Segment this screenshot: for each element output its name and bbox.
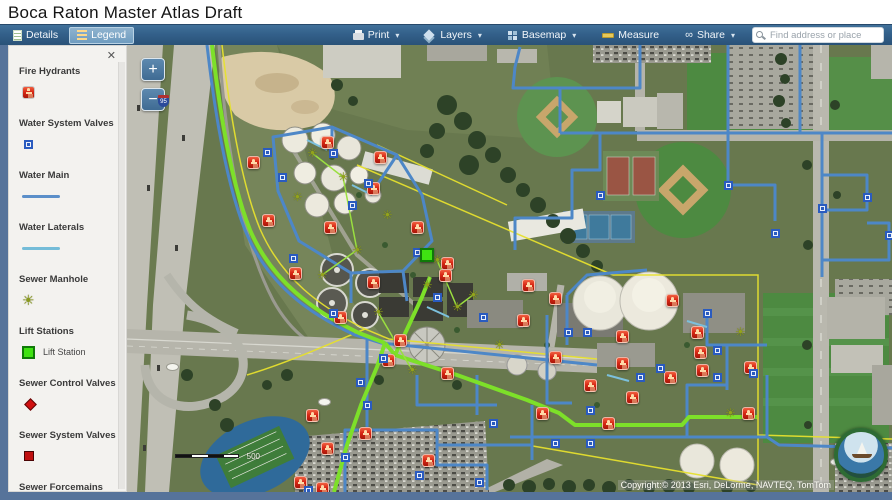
water-valve-marker[interactable] bbox=[749, 369, 758, 378]
legend-item-label: Sewer Control Valves bbox=[19, 378, 119, 389]
measure-icon bbox=[602, 33, 614, 38]
legend-panel: ✕ Fire HydrantsWater System ValvesWater … bbox=[8, 45, 127, 492]
print-button-label: Print bbox=[368, 29, 390, 41]
sewer-manhole-marker[interactable]: ☀ bbox=[307, 148, 318, 158]
sewer-manhole-marker[interactable]: ☀ bbox=[373, 307, 384, 317]
water-valve-marker[interactable] bbox=[551, 439, 560, 448]
fire-hydrant-marker[interactable] bbox=[626, 391, 639, 404]
lift-station-marker[interactable] bbox=[420, 248, 434, 262]
sewer-manhole-marker[interactable]: ☀ bbox=[735, 327, 746, 337]
route-shield bbox=[318, 398, 331, 406]
legend-swatch-row bbox=[22, 397, 119, 411]
legend-item-sublabel: Lift Station bbox=[43, 347, 86, 357]
legend-swatch-row bbox=[22, 449, 119, 463]
legend-item-label: Water Laterals bbox=[19, 222, 119, 233]
system-valve-icon bbox=[24, 451, 34, 461]
fire-hydrant-marker[interactable] bbox=[666, 294, 679, 307]
water-valve-marker[interactable] bbox=[479, 313, 488, 322]
water-valve-marker[interactable] bbox=[564, 328, 573, 337]
water-valve-marker[interactable] bbox=[348, 201, 357, 210]
details-button-label: Details bbox=[26, 29, 58, 41]
water-valve-marker[interactable] bbox=[724, 181, 733, 190]
legend-items: Fire HydrantsWater System ValvesWater Ma… bbox=[9, 66, 119, 492]
legend-item-label: Sewer Manhole bbox=[19, 274, 119, 285]
legend-item: Sewer Manhole☀ bbox=[19, 274, 119, 307]
legend-swatch-row bbox=[22, 189, 119, 203]
water-valve-marker[interactable] bbox=[713, 346, 722, 355]
grid-icon bbox=[508, 31, 512, 35]
water-valve-marker[interactable] bbox=[433, 293, 442, 302]
water-valve-marker[interactable] bbox=[583, 328, 592, 337]
layers-icon bbox=[424, 29, 435, 40]
chevron-down-icon: ▾ bbox=[478, 31, 482, 40]
water-lateral-line-icon bbox=[22, 247, 60, 250]
interstate-95-shield: 95 bbox=[158, 95, 169, 107]
share-button[interactable]: ∞Share▾ bbox=[678, 27, 742, 44]
toolbar-right-group: Print▾Layers▾Basemap▾Measure∞Share▾ bbox=[346, 27, 884, 44]
sewer-manhole-marker[interactable]: ☀ bbox=[468, 290, 479, 300]
fire-hydrant-marker[interactable] bbox=[367, 276, 380, 289]
city-seal-logo bbox=[834, 428, 888, 482]
sewer-manhole-marker[interactable]: ☀ bbox=[292, 192, 303, 202]
fire-hydrant-marker[interactable] bbox=[324, 221, 337, 234]
legend-item-label: Water Main bbox=[19, 170, 119, 181]
legend-scrollbar[interactable] bbox=[118, 62, 125, 489]
fire-hydrant-marker[interactable] bbox=[411, 221, 424, 234]
fire-hydrant-marker[interactable] bbox=[289, 267, 302, 280]
water-valve-marker[interactable] bbox=[329, 149, 338, 158]
chevron-down-icon: ▾ bbox=[731, 31, 735, 40]
layers-button[interactable]: Layers▾ bbox=[418, 27, 489, 44]
fire-hydrant-marker[interactable] bbox=[691, 326, 704, 339]
fire-hydrant-marker[interactable] bbox=[374, 151, 387, 164]
water-valve-marker[interactable] bbox=[703, 309, 712, 318]
sewer-manhole-marker[interactable]: ☀ bbox=[422, 280, 433, 290]
chevron-down-icon: ▾ bbox=[395, 31, 399, 40]
water-valve-marker[interactable] bbox=[304, 486, 313, 492]
legend-item-label: Lift Stations bbox=[19, 326, 119, 337]
legend-item: Sewer System Valves bbox=[19, 430, 119, 463]
fire-hydrant-marker[interactable] bbox=[359, 427, 372, 440]
legend-button-label: Legend bbox=[91, 29, 126, 41]
fire-hydrant-marker[interactable] bbox=[316, 482, 329, 492]
legend-item: Sewer Control Valves bbox=[19, 378, 119, 411]
inf-icon: ∞ bbox=[685, 30, 693, 40]
water-valve-marker[interactable] bbox=[415, 471, 424, 480]
water-valve-marker[interactable] bbox=[356, 378, 365, 387]
fire-hydrant-marker[interactable] bbox=[321, 442, 334, 455]
fire-hydrant-marker[interactable] bbox=[262, 214, 275, 227]
fire-hydrant-marker[interactable] bbox=[517, 314, 530, 327]
water-valve-marker[interactable] bbox=[885, 231, 892, 240]
water-valve-marker[interactable] bbox=[586, 406, 595, 415]
legend-swatch-row bbox=[22, 85, 119, 99]
list-icon bbox=[77, 30, 87, 40]
water-valve-marker[interactable] bbox=[636, 373, 645, 382]
print-button[interactable]: Print▾ bbox=[346, 27, 407, 44]
measure-button[interactable]: Measure bbox=[595, 27, 666, 44]
lift-station-icon bbox=[22, 346, 35, 359]
legend-swatch-row: Lift Station bbox=[22, 345, 119, 359]
sewer-manhole-marker[interactable]: ☀ bbox=[338, 172, 349, 182]
sewer-manhole-marker[interactable]: ☀ bbox=[725, 408, 736, 418]
hydrant-icon bbox=[22, 86, 35, 99]
water-valve-icon bbox=[24, 140, 33, 149]
page-title: Boca Raton Master Atlas Draft bbox=[8, 3, 242, 23]
water-valve-marker[interactable] bbox=[596, 191, 605, 200]
print-icon bbox=[353, 33, 364, 40]
fire-hydrant-marker[interactable] bbox=[422, 454, 435, 467]
measure-button-label: Measure bbox=[618, 29, 659, 41]
fire-hydrant-marker[interactable] bbox=[247, 156, 260, 169]
fire-hydrant-marker[interactable] bbox=[584, 379, 597, 392]
sewer-manhole-marker[interactable]: ☀ bbox=[352, 245, 363, 255]
layers-button-label: Layers bbox=[440, 29, 472, 41]
water-valve-marker[interactable] bbox=[329, 309, 338, 318]
water-valve-marker[interactable] bbox=[289, 254, 298, 263]
control-valve-icon bbox=[24, 398, 37, 411]
water-valve-marker[interactable] bbox=[586, 439, 595, 448]
fire-hydrant-marker[interactable] bbox=[602, 417, 615, 430]
water-main-line-icon bbox=[22, 195, 60, 198]
map-canvas[interactable]: ☀☀☀☀☀☀☀☀☀☀☀☀☀☀☀ + − 95 500 Copyright:© 2… bbox=[127, 45, 892, 492]
toolbar-left-group: DetailsLegend bbox=[6, 27, 134, 44]
water-valve-marker[interactable] bbox=[364, 179, 373, 188]
fire-hydrant-marker[interactable] bbox=[536, 407, 549, 420]
water-valve-marker[interactable] bbox=[263, 148, 272, 157]
chevron-down-icon: ▾ bbox=[572, 31, 576, 40]
water-valve-marker[interactable] bbox=[656, 364, 665, 373]
toolbar: DetailsLegend Print▾Layers▾Basemap▾Measu… bbox=[0, 24, 892, 45]
fire-hydrant-marker[interactable] bbox=[696, 364, 709, 377]
fire-hydrant-marker[interactable] bbox=[616, 330, 629, 343]
water-valve-marker[interactable] bbox=[863, 193, 872, 202]
scale-bar: 500 bbox=[175, 454, 239, 458]
sewer-manhole-marker[interactable]: ☀ bbox=[452, 302, 463, 312]
sewer-manhole-marker[interactable]: ☀ bbox=[317, 270, 328, 280]
water-valve-marker[interactable] bbox=[341, 453, 350, 462]
legend-item-label: Fire Hydrants bbox=[19, 66, 119, 77]
water-valve-marker[interactable] bbox=[713, 373, 722, 382]
details-button[interactable]: Details bbox=[6, 27, 65, 44]
fire-hydrant-marker[interactable] bbox=[441, 367, 454, 380]
zoom-in-button[interactable]: + bbox=[141, 58, 165, 81]
share-button-label: Share bbox=[697, 29, 725, 41]
legend-item: Water System Valves bbox=[19, 118, 119, 151]
fire-hydrant-marker[interactable] bbox=[742, 407, 755, 420]
map-attribution: Copyright:© 2013 Esri, DeLorme, NAVTEQ, … bbox=[618, 480, 834, 490]
fire-hydrant-marker[interactable] bbox=[306, 409, 319, 422]
search-input[interactable] bbox=[770, 28, 882, 42]
search-box[interactable] bbox=[752, 27, 884, 43]
basemap-button[interactable]: Basemap▾ bbox=[501, 27, 583, 44]
close-icon[interactable]: ✕ bbox=[107, 49, 116, 62]
manhole-icon: ☀ bbox=[22, 294, 35, 306]
fire-hydrant-marker[interactable] bbox=[549, 292, 562, 305]
route-shield bbox=[166, 363, 179, 371]
legend-item: Water Main bbox=[19, 170, 119, 203]
fire-hydrant-marker[interactable] bbox=[394, 334, 407, 347]
sewer-manhole-marker[interactable]: ☀ bbox=[407, 365, 418, 375]
legend-item-label: Sewer Forcemains bbox=[19, 482, 119, 492]
aerial-basemap bbox=[127, 45, 892, 492]
water-valve-marker[interactable] bbox=[363, 401, 372, 410]
fire-hydrant-marker[interactable] bbox=[664, 371, 677, 384]
legend-item: Water Laterals bbox=[19, 222, 119, 255]
sewer-manhole-marker[interactable]: ☀ bbox=[494, 340, 505, 350]
fire-hydrant-marker[interactable] bbox=[616, 357, 629, 370]
legend-swatch-row: ☀ bbox=[22, 293, 119, 307]
basemap-button-label: Basemap bbox=[522, 29, 566, 41]
legend-item: Lift StationsLift Station bbox=[19, 326, 119, 359]
fire-hydrant-marker[interactable] bbox=[694, 346, 707, 359]
sewer-manhole-marker[interactable]: ☀ bbox=[382, 210, 393, 220]
legend-swatch-row bbox=[22, 241, 119, 255]
fire-hydrant-marker[interactable] bbox=[439, 269, 452, 282]
fire-hydrant-marker[interactable] bbox=[549, 351, 562, 364]
legend-button[interactable]: Legend bbox=[69, 27, 134, 44]
search-icon bbox=[756, 31, 763, 38]
water-valve-marker[interactable] bbox=[771, 229, 780, 238]
water-valve-marker[interactable] bbox=[278, 173, 287, 182]
doc-icon bbox=[13, 30, 22, 41]
water-valve-marker[interactable] bbox=[379, 354, 388, 363]
legend-item-label: Water System Valves bbox=[19, 118, 119, 129]
water-valve-marker[interactable] bbox=[818, 204, 827, 213]
legend-swatch-row bbox=[22, 137, 119, 151]
title-bar: Boca Raton Master Atlas Draft bbox=[0, 0, 892, 24]
fire-hydrant-marker[interactable] bbox=[522, 279, 535, 292]
legend-item: Sewer ForcemainsACTIVE bbox=[19, 482, 119, 492]
water-valve-marker[interactable] bbox=[489, 419, 498, 428]
fire-hydrant-marker[interactable] bbox=[321, 136, 334, 149]
legend-item: Fire Hydrants bbox=[19, 66, 119, 99]
legend-item-label: Sewer System Valves bbox=[19, 430, 119, 441]
water-valve-marker[interactable] bbox=[475, 478, 484, 487]
